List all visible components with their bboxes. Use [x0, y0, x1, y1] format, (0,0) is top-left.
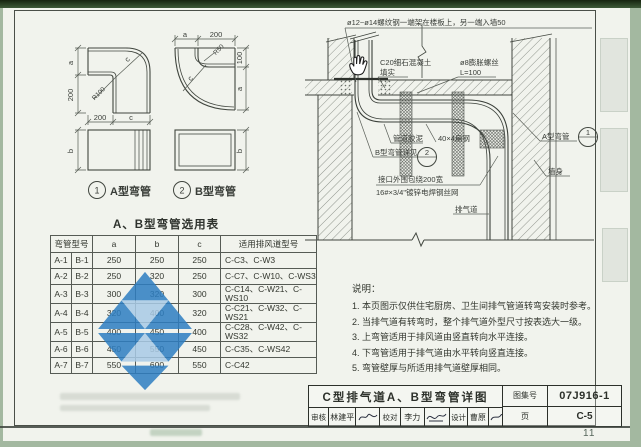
table-cell: B-4: [72, 304, 93, 323]
elbow-figures-drawing: a 200 200 c c R100 b a 200 100 a: [30, 15, 330, 225]
staff-role-label: 校对: [380, 408, 400, 426]
table-cell: B-3: [72, 285, 93, 304]
staff-name: 林建平: [329, 408, 356, 426]
staff-name: 李力: [401, 408, 425, 426]
table-cell: C-C35、C-WS42: [221, 342, 317, 358]
signature-scribble-icon: [425, 411, 448, 423]
drawing-title: C型排气道A、B型弯管详图: [309, 386, 502, 408]
mesh-wrap-callout: 接口外围包绕200宽: [378, 174, 444, 184]
a-type-elbow-drawing: [88, 48, 150, 170]
scan-top-edge: [0, 0, 641, 8]
anchor-callout: L=100: [460, 68, 481, 77]
table-cell: C-C28、C-W42、C-WS32: [221, 323, 317, 342]
anchor-callout: ø8膨胀螺丝: [460, 57, 499, 67]
signature: [356, 408, 380, 426]
mesh-wrap-callout: 16#×3/4"镀锌电焊钢丝网: [376, 187, 458, 197]
table-cell: A-5: [51, 323, 72, 342]
staff-role-label: 设计: [450, 408, 468, 426]
note-item: 1. 本页图示仅供住宅厨房、卫生间排气管道转弯安装时参考。: [352, 299, 598, 315]
duct-callout: 排气道: [455, 204, 478, 214]
table-cell: B-6: [72, 342, 93, 358]
table-cell: A-2: [51, 269, 72, 285]
table-cell: A-3: [51, 285, 72, 304]
a-type-dimensions: [75, 45, 153, 173]
signature: [489, 408, 502, 426]
signature: [425, 408, 450, 426]
dim-label: a: [183, 30, 188, 39]
table-cell: B-2: [72, 269, 93, 285]
notes-section: 说明： 1. 本页图示仅供住宅厨房、卫生间排气管道转弯安装时参考。 2. 当排气…: [352, 281, 598, 377]
note-item: 3. 上弯管适用于排风道由竖直转向水平连接。: [352, 330, 598, 346]
wall-callout: 墙身: [548, 166, 563, 176]
note-item: 2. 当排气道有转弯时，整个排气道外型尺寸按表选大一级。: [352, 315, 598, 331]
note-item: 4. 下弯管适用于排气道由水平转向竖直连接。: [352, 346, 598, 362]
table-cell: C-C3、C-W3: [221, 253, 317, 269]
dim-label: 200: [66, 89, 75, 102]
table-cell: C-C21、C-W32、C-WS21: [221, 304, 317, 323]
column-header: 适用排风道型号: [221, 236, 317, 253]
table-cell: B-1: [72, 253, 93, 269]
dim-label: a: [235, 86, 244, 91]
bubble-number: 1: [586, 128, 590, 137]
title-block: C型排气道A、B型弯管详图 审核 林建平 校对 李力 设计 曹原 图集号 07J…: [308, 385, 622, 427]
dim-label: c: [129, 113, 133, 122]
notes-heading: 说明：: [352, 281, 598, 295]
sheet-bottom-rule: [0, 426, 630, 428]
figure-caption-a: A型弯管: [110, 184, 151, 198]
dim-label: b: [235, 149, 244, 153]
column-header: c: [179, 236, 221, 253]
column-header: 弯管型号: [51, 236, 93, 253]
mastic-callout: 管道胶泥: [393, 133, 423, 143]
leader-lines: [345, 28, 598, 214]
table-cell: A-6: [51, 342, 72, 358]
atlas-number: 07J916-1: [548, 386, 621, 406]
table-cell: B-7: [72, 358, 93, 374]
table-cell: A-4: [51, 304, 72, 323]
signature-scribble-icon: [489, 411, 502, 423]
dim-label: c: [186, 74, 195, 83]
dim-label: 200: [210, 30, 223, 39]
radius-label: R50: [212, 43, 226, 57]
note-item: 5. 弯管壁厚与所适用排气道壁厚相同。: [352, 361, 598, 377]
staff-name: 曹原: [468, 408, 488, 426]
signature-scribble-icon: [357, 411, 379, 423]
table-cell: A-1: [51, 253, 72, 269]
column-header: a: [93, 236, 136, 253]
atlas-page: a 200 200 c c R100 b a 200 100 a: [0, 0, 641, 447]
figure-number: 2: [179, 186, 184, 196]
a-bend-callout: A型弯管: [542, 131, 570, 141]
atlas-number-label: 图集号: [503, 386, 548, 406]
b-bend-ref-callout: B型弯管详见: [375, 147, 418, 157]
column-header: b: [136, 236, 179, 253]
dim-label: c: [123, 55, 132, 64]
flat-steel-callout: 40×4扁钢: [438, 133, 470, 143]
page-code: C-5: [548, 407, 621, 427]
bleed-through: [60, 405, 210, 411]
table-header-row: 弯管型号 a b c 适用排风道型号: [51, 236, 317, 253]
staff-role-label: 审核: [309, 408, 329, 426]
figure-number: 1: [94, 186, 99, 196]
table-cell: C-C14、C-W21、C-WS10: [221, 285, 317, 304]
table-cell: B-5: [72, 323, 93, 342]
bubble-number: 2: [425, 148, 429, 157]
concrete-callout: 填实: [380, 67, 395, 77]
dim-label: a: [66, 60, 75, 65]
figure-captions: 1 A型弯管 2 B型弯管: [89, 182, 236, 199]
rebar-callout: ø12~ø14螺纹钢一端架在楼板上，另一端入墙50: [347, 17, 506, 27]
table-cell: C-C7、C-W10、C-WS3: [221, 269, 317, 285]
dim-label: b: [66, 149, 75, 153]
bleed-through: [150, 429, 202, 436]
selection-table-title: A、B型弯管选用表: [113, 216, 219, 232]
page-label: 页: [503, 407, 548, 427]
dim-label: 200: [94, 113, 107, 122]
figure-caption-b: B型弯管: [195, 184, 236, 198]
table-cell: C-C42: [221, 358, 317, 374]
book-page-number: 11: [583, 428, 595, 439]
concrete-callout: C20细石混凝土: [380, 57, 432, 67]
dim-label: 100: [235, 52, 244, 65]
publisher-watermark-logo: [94, 264, 196, 398]
table-cell: A-7: [51, 358, 72, 374]
